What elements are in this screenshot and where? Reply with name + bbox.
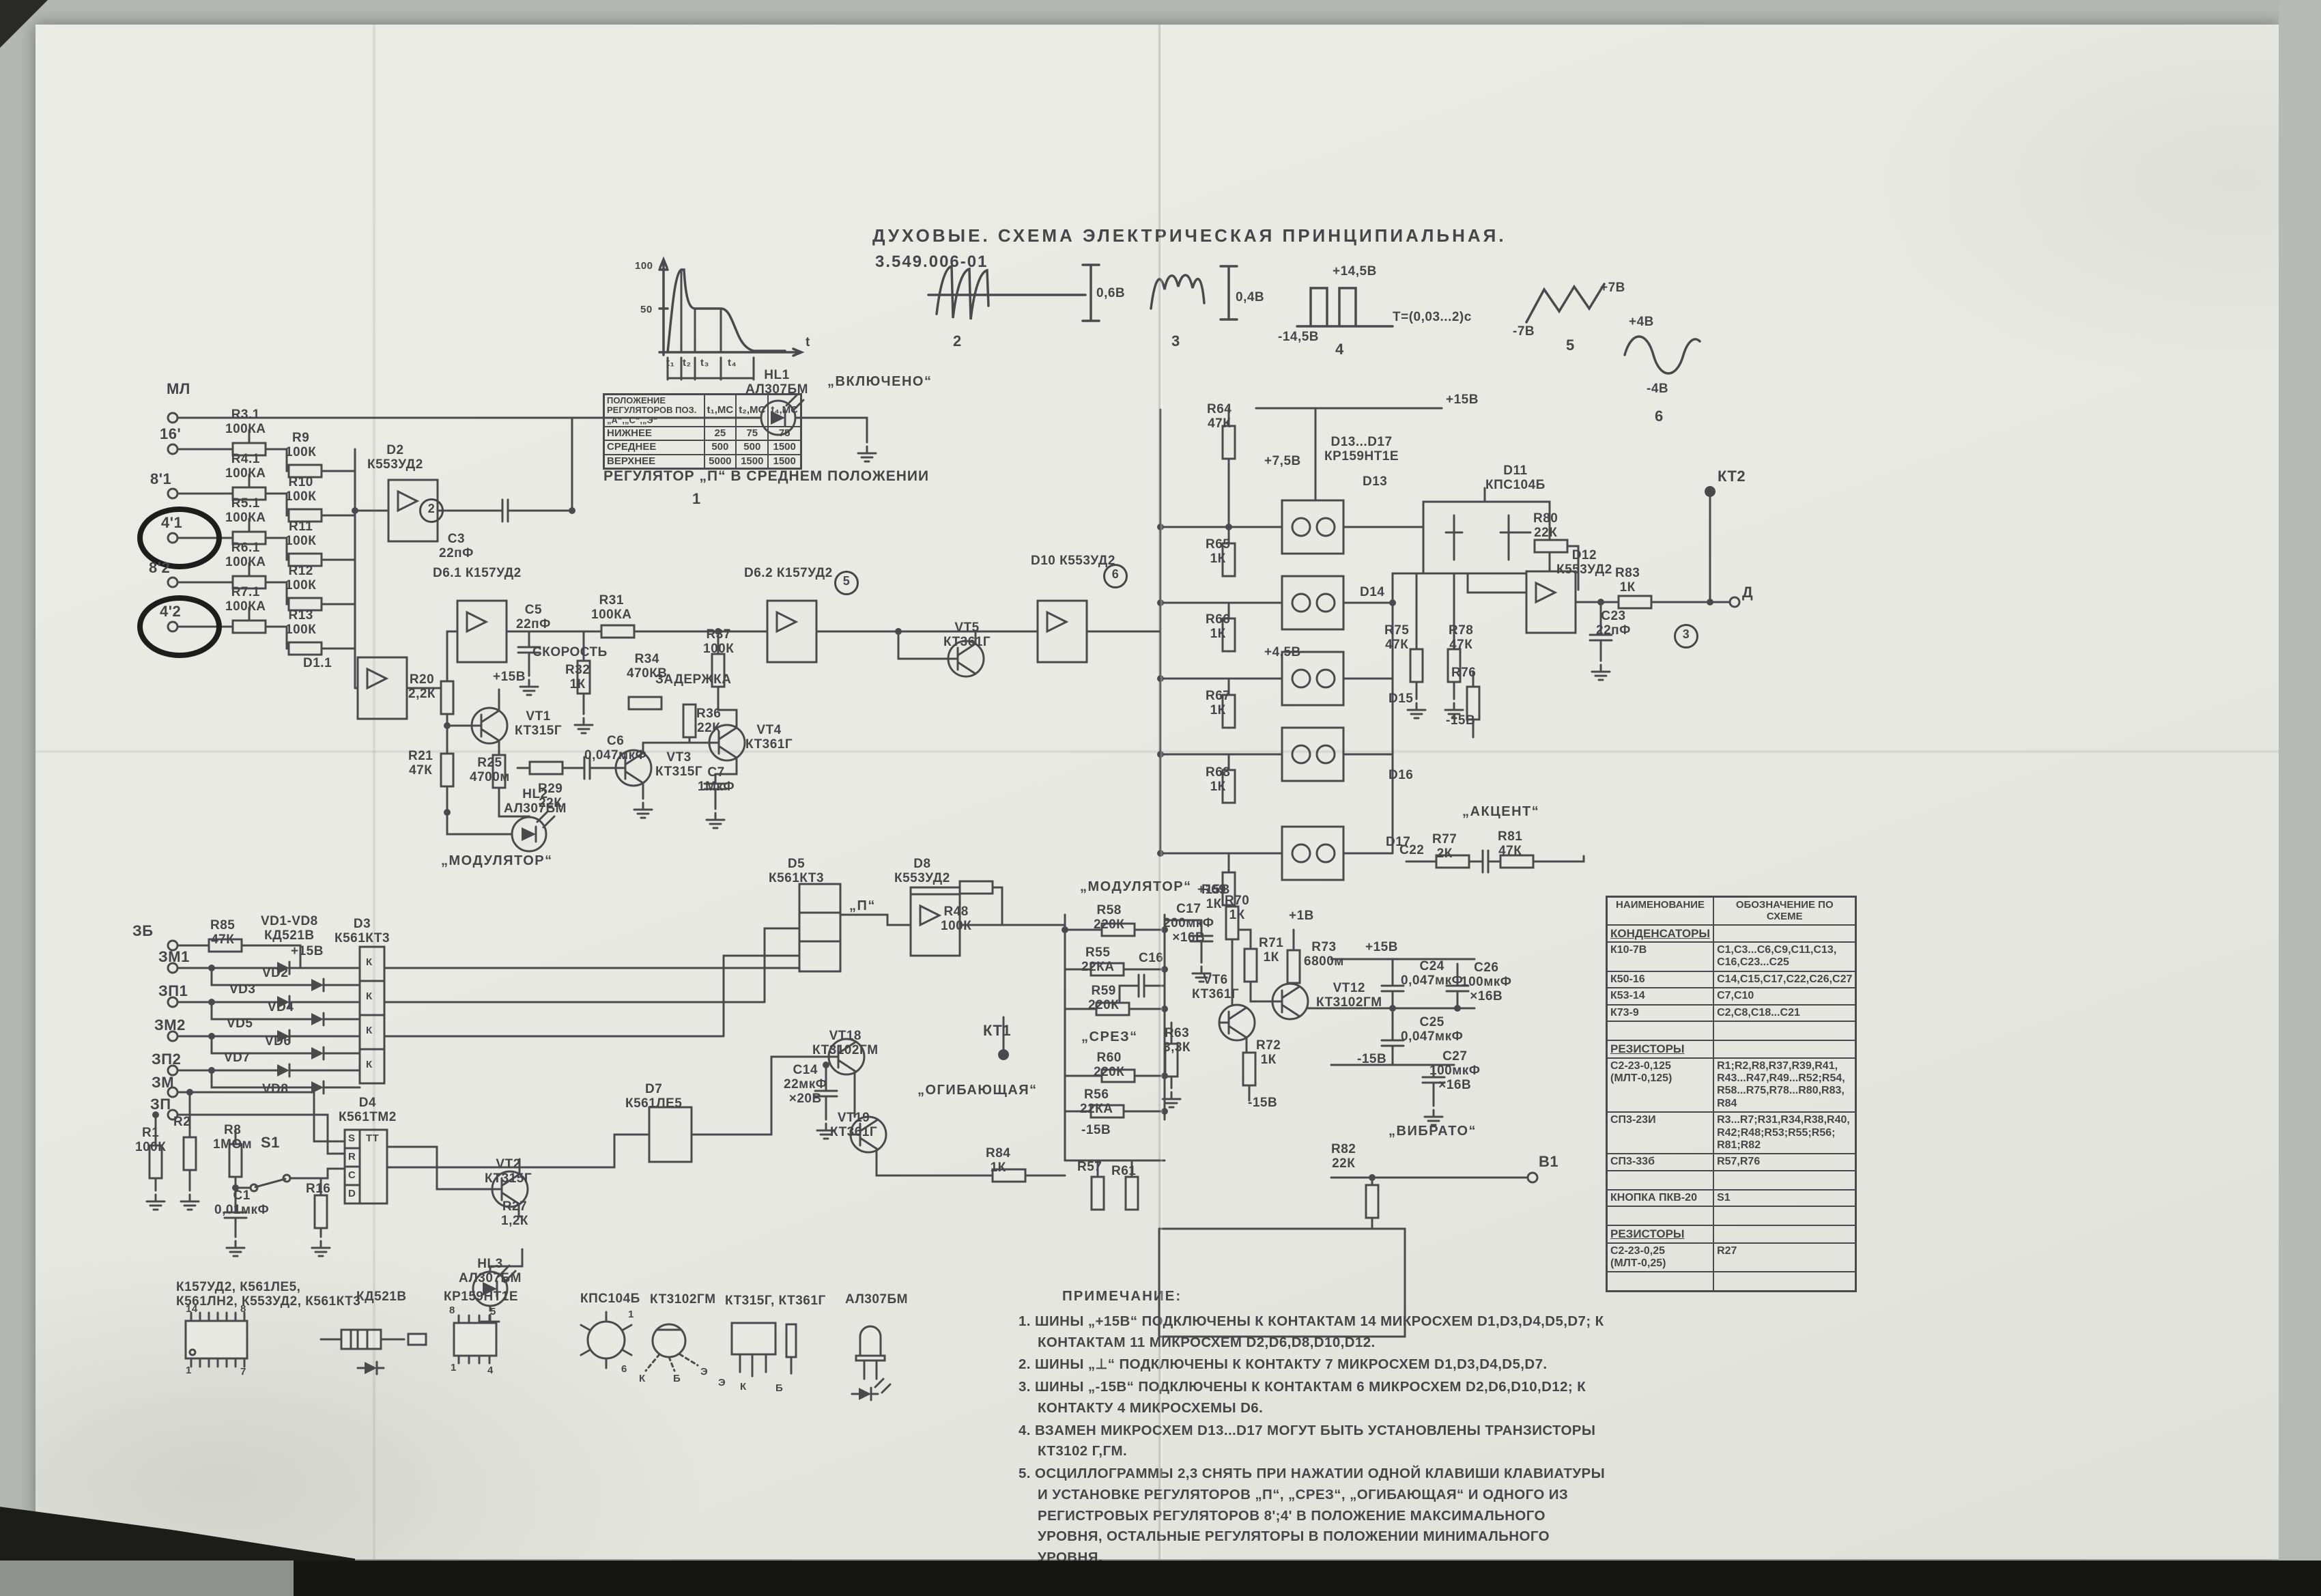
component-label: 3 <box>1674 624 1698 649</box>
regulator-table-row: НИЖНЕЕ257575 <box>604 427 801 441</box>
component-label: 4 <box>487 1365 494 1377</box>
component-label: R3.1 100КА <box>225 408 266 437</box>
component-label: R59 220К <box>1088 984 1119 1013</box>
component-label: „АКЦЕНТ“ <box>1462 804 1539 819</box>
component-label: R25 4700м <box>470 756 510 785</box>
component-label: -15В <box>1248 1096 1277 1111</box>
component-label: -15В <box>1357 1053 1386 1067</box>
component-label: R13 100К <box>285 609 316 638</box>
components-table-header-name: НАИМЕНОВАНИЕ <box>1607 897 1714 925</box>
regulator-table-row: СРЕДНЕЕ5005001500 <box>604 440 801 455</box>
component-label: C27 100мкФ ×16В <box>1429 1050 1480 1093</box>
component-label: R31 100КА <box>591 594 632 623</box>
components-table-row: РЕЗИСТОРЫ <box>1607 1040 1856 1058</box>
component-label: К <box>366 957 373 969</box>
component-label: -7В <box>1513 325 1535 339</box>
component-label: „ВИБРАТО“ <box>1389 1124 1477 1139</box>
component-label: D6.1 К157УД2 <box>433 567 522 581</box>
component-label: C1 0,01мкФ <box>214 1189 269 1218</box>
component-label: D1.1 <box>303 657 332 671</box>
component-label: -15В <box>1081 1124 1111 1138</box>
package-label: АЛ307БМ <box>845 1293 908 1307</box>
package-label: КПС104Б <box>580 1292 640 1307</box>
component-label: C6 0,047мкФ <box>584 735 646 763</box>
component-label: Э <box>718 1378 726 1389</box>
component-label: D8 К553УД2 <box>894 857 950 886</box>
component-label: R72 1К <box>1256 1039 1281 1068</box>
component-label: T=(0,03...2)с <box>1393 311 1472 325</box>
component-label: VD3 <box>229 983 255 997</box>
component-label: -14,5В <box>1278 330 1319 345</box>
component-label: 6 <box>1103 564 1128 588</box>
component-label: R6.1 100КА <box>225 541 266 570</box>
component-label: R77 2К <box>1432 833 1457 861</box>
component-label: D3 К561КТ3 <box>334 917 390 946</box>
component-label: VT2 КТ315Г <box>485 1158 532 1186</box>
component-label: C25 0,047мкФ <box>1401 1016 1463 1044</box>
component-label: D2 К553УД2 <box>367 444 423 472</box>
component-label: +15В <box>1365 941 1398 955</box>
component-label: C7 1МкФ <box>698 766 735 795</box>
component-label: КТ2 <box>1718 468 1746 485</box>
component-label: R48 100К <box>941 905 971 934</box>
scanner-bed-right <box>2279 0 2321 1596</box>
components-table-row: К73-9C2,C8,C18...C21 <box>1607 1005 1856 1021</box>
component-label: 0,4В <box>1236 291 1264 305</box>
component-label: D13...D17 КР159НТ1Е <box>1324 436 1399 464</box>
package-label: КТ315Г, КТ361Г <box>725 1294 826 1309</box>
package-label: К157УД2, К561ЛЕ5, К561ЛН2, К553УД2, К561… <box>176 1281 360 1309</box>
component-label: R27 1,2К <box>501 1200 528 1229</box>
component-label: R67 1К <box>1206 689 1230 718</box>
component-label: C26 100мкФ ×16В <box>1461 961 1511 1004</box>
component-label: Э <box>700 1367 708 1378</box>
component-label: 14 <box>186 1304 198 1315</box>
component-label: R65 1К <box>1206 538 1230 567</box>
component-label: VD8 <box>262 1083 288 1097</box>
component-label: В1 <box>1539 1154 1558 1170</box>
component-label: R58 220К <box>1094 904 1124 932</box>
package-label: КД521В <box>356 1290 407 1305</box>
component-label: VD5 <box>227 1017 253 1031</box>
component-label: ЗБ <box>132 923 154 939</box>
component-label: S1 <box>261 1135 280 1151</box>
component-label: К <box>740 1382 747 1393</box>
component-label: R7.1 100КА <box>225 586 266 614</box>
component-label: -4В <box>1647 382 1668 397</box>
scanner-bed-bottom <box>294 1561 2321 1596</box>
component-label: R71 1К <box>1259 937 1283 965</box>
component-label: Б <box>673 1373 681 1385</box>
component-label: +1В <box>1289 909 1314 924</box>
component-label: 16' <box>160 426 181 442</box>
components-table-row: К10-7ВC1,C3...C6,C9,C11,C13, C16,C23...C… <box>1607 942 1856 971</box>
component-label: ЗАДЕРЖКА <box>655 673 731 687</box>
note-item: 3. ШИНЫ „-15В“ ПОДКЛЮЧЕНЫ К КОНТАКТАМ 6 … <box>1019 1377 1612 1419</box>
component-label: VD4 <box>268 1001 294 1015</box>
component-label: 6 <box>621 1364 627 1376</box>
components-table-row <box>1607 1206 1856 1225</box>
component-label: 3 <box>1171 333 1180 350</box>
note-item: 2. ШИНЫ „⊥“ ПОДКЛЮЧЕНЫ К КОНТАКТУ 7 МИКР… <box>1019 1354 1612 1376</box>
component-label: 8 <box>240 1304 246 1315</box>
components-table-row: РЕЗИСТОРЫ <box>1607 1225 1856 1243</box>
regulator-table-col3: t₄,МС <box>768 395 801 427</box>
components-table-row <box>1607 1272 1856 1292</box>
component-label: R64 47К <box>1207 403 1231 431</box>
component-label: R10 100К <box>285 476 316 504</box>
component-label: 1 <box>451 1363 457 1374</box>
components-table-row: СП3-23ИR3...R7;R31,R34,R38,R40, R42;R48;… <box>1607 1112 1856 1154</box>
component-label: Б <box>775 1383 783 1395</box>
component-label: R5.1 100КА <box>225 497 266 526</box>
component-label: VT19 КТ361Г <box>830 1111 877 1140</box>
page-title: ДУХОВЫЕ. СХЕМА ЭЛЕКТРИЧЕСКАЯ ПРИНЦИПИАЛЬ… <box>872 225 1507 246</box>
component-label: ЗП <box>150 1096 171 1113</box>
components-table-row: С2-23-0,125 (МЛТ-0,125)R1;R2,R8,R37,R39,… <box>1607 1058 1856 1113</box>
component-label: R81 47К <box>1498 830 1522 859</box>
component-label: +4,5В <box>1264 646 1301 660</box>
component-label: 7 <box>240 1367 246 1378</box>
component-label: R32 1К <box>565 664 590 692</box>
component-label: R36 22К <box>696 707 721 736</box>
component-label: +14,5В <box>1333 265 1377 279</box>
component-label: 100 <box>635 261 653 272</box>
component-label: R16 <box>306 1182 330 1197</box>
component-label: VT3 КТ315Г <box>655 751 702 780</box>
component-label: C <box>348 1170 356 1182</box>
regulator-caption: РЕГУЛЯТОР „П“ В СРЕДНЕМ ПОЛОЖЕНИИ <box>603 468 929 485</box>
component-label: R75 47К <box>1384 624 1409 653</box>
component-label: R12 100К <box>285 565 316 593</box>
component-label: R37 100К <box>703 628 734 657</box>
components-table-row: С2-23-0,25 (МЛТ-0,25)R27 <box>1607 1243 1856 1272</box>
component-label: „МОДУЛЯТОР“ <box>1080 879 1192 894</box>
component-label: 8'2 <box>149 560 170 576</box>
component-label: R55 22КА <box>1081 946 1114 975</box>
component-label: R21 47К <box>408 750 433 778</box>
package-label: КТ3102ГМ <box>650 1293 716 1307</box>
component-label: D11 КПС104Б <box>1485 464 1546 493</box>
notes-heading: ПРИМЕЧАНИЕ: <box>1062 1286 1612 1307</box>
component-label: D7 К561ЛЕ5 <box>625 1083 682 1111</box>
component-label: „СРЕЗ“ <box>1081 1029 1138 1044</box>
component-label: СКОРОСТЬ <box>532 646 608 660</box>
component-label: R9 100К <box>285 431 316 460</box>
component-label: C23 22пФ <box>1596 610 1631 638</box>
note-item: 1. ШИНЫ „+15В“ ПОДКЛЮЧЕНЫ К КОНТАКТАМ 14… <box>1019 1311 1612 1354</box>
figure-number: 1 <box>692 490 700 508</box>
component-label: D10 К553УД2 <box>1031 554 1115 569</box>
component-label: ЗМ <box>152 1074 174 1091</box>
component-label: 8'1 <box>150 471 171 487</box>
component-label: „П“ <box>849 898 876 913</box>
component-label: VT6 КТ361Г <box>1192 973 1239 1002</box>
component-label: +15В <box>291 945 324 959</box>
note-item: 5. ОСЦИЛЛОГРАММЫ 2,3 СНЯТЬ ПРИ НАЖАТИИ О… <box>1019 1464 1612 1569</box>
component-label: D12 К553УД2 <box>1556 549 1612 578</box>
component-label: 1 <box>186 1365 192 1377</box>
package-label: КР159НТ1Е <box>444 1290 518 1305</box>
document-number: 3.549.006-01 <box>875 253 988 272</box>
component-label: 8 <box>449 1305 455 1317</box>
component-label: 2 <box>419 498 444 523</box>
component-label: D5 К561КТ3 <box>769 857 824 886</box>
component-label: t₂ <box>683 358 692 369</box>
component-label: 4 <box>1335 341 1344 358</box>
component-label: D16 <box>1389 769 1413 783</box>
component-label: R73 6800м <box>1304 941 1344 969</box>
component-label: D <box>348 1188 356 1200</box>
component-label: VD1-VD8 КД521В <box>261 915 318 943</box>
component-label: C24 0,047мкФ <box>1401 960 1463 988</box>
component-label: ТТ <box>366 1133 379 1145</box>
component-label: VT1 КТ315Г <box>515 710 562 739</box>
component-label: VD2 <box>262 967 288 981</box>
component-label: R20 2,2К <box>408 673 436 702</box>
component-label: HL1 АЛ307БМ <box>745 369 808 397</box>
component-label: S <box>348 1133 356 1145</box>
component-label: 4'2 <box>160 603 181 620</box>
component-label: 5 <box>1566 337 1575 354</box>
component-label: R83 1К <box>1615 567 1640 595</box>
components-table-row: КНОПКА ПКВ-20S1 <box>1607 1190 1856 1206</box>
component-label: К <box>366 1025 373 1037</box>
component-label: D15 <box>1389 692 1413 707</box>
component-label: R60 220К <box>1094 1051 1124 1080</box>
component-label: +15В <box>493 670 526 685</box>
component-label: R2 <box>173 1115 190 1130</box>
component-label: VT12 КТ3102ГМ <box>1316 982 1382 1010</box>
component-label: -15В <box>1446 714 1475 728</box>
regulator-table-col1: t₁,МС <box>704 395 737 427</box>
component-label: +7,5В <box>1264 455 1301 469</box>
component-label: C14 22мкФ ×20В <box>784 1064 827 1107</box>
component-label: VT5 КТ361Г <box>943 621 991 650</box>
component-label: К <box>639 1373 646 1385</box>
regulator-table-row: ВЕРХНЕЕ500015001500 <box>604 455 801 469</box>
scanner-bed-bottom-left <box>0 1561 294 1596</box>
component-label: R1 100К <box>135 1126 166 1155</box>
components-table-row: К53-14C7,C10 <box>1607 988 1856 1004</box>
component-label: R8 1МОм <box>213 1124 252 1152</box>
component-label: HL2 АЛ307БМ <box>504 788 567 816</box>
regulator-table-col2: t₂,МС <box>736 395 768 427</box>
components-table-row <box>1607 1021 1856 1040</box>
component-label: D13 <box>1363 475 1387 489</box>
component-label: C22 <box>1399 844 1424 858</box>
component-label: VD6 <box>265 1035 291 1049</box>
component-label: R57 <box>1077 1160 1102 1175</box>
note-item: 4. ВЗАМЕН МИКРОСХЕМ D13...D17 МОГУТ БЫТЬ… <box>1019 1421 1612 1463</box>
component-label: R4.1 100КА <box>225 453 266 481</box>
component-label: R85 47К <box>210 919 235 947</box>
regulator-positions-table: ПОЛОЖЕНИЕ РЕГУЛЯТОРОВ ПОЗ. „А“,„С“,„Э“ t… <box>603 393 802 470</box>
component-label: ЗМ2 <box>154 1017 186 1034</box>
component-label: R56 22КА <box>1080 1088 1113 1117</box>
component-label: VT18 КТ3102ГМ <box>812 1029 879 1058</box>
component-label: 5 <box>490 1307 496 1318</box>
component-label: R63 3,3К <box>1163 1027 1191 1055</box>
component-label: +4В <box>1629 315 1654 330</box>
components-table-row: СП3-33бR57,R76 <box>1607 1154 1856 1170</box>
component-label: t₃ <box>700 358 709 369</box>
notes-block: ПРИМЕЧАНИЕ: 1. ШИНЫ „+15В“ ПОДКЛЮЧЕНЫ К … <box>1019 1286 1612 1570</box>
component-label: R82 22К <box>1331 1143 1356 1171</box>
components-table-row: К50-16C14,C15,C17,C22,C26,C27 <box>1607 971 1856 988</box>
component-label: +7В <box>1600 281 1625 296</box>
components-table-row: КОНДЕНСАТОРЫ <box>1607 925 1856 943</box>
component-label: D6.2 К157УД2 <box>744 567 833 581</box>
component-label: +15В <box>1446 393 1479 408</box>
component-label: R66 1К <box>1206 613 1230 642</box>
component-label: R80 22К <box>1533 512 1558 541</box>
component-label: 50 <box>640 304 653 316</box>
component-label: C16 <box>1139 952 1163 966</box>
component-label: ЗП1 <box>158 983 188 999</box>
component-label: t <box>806 336 810 350</box>
component-label: R78 47К <box>1449 624 1473 653</box>
component-label: 0,6В <box>1096 287 1125 301</box>
component-label: ЗМ1 <box>158 949 190 965</box>
component-label: R70 1К <box>1225 894 1249 923</box>
component-label: +15В <box>1197 883 1230 898</box>
scanned-schematic-page: ДУХОВЫЕ. СХЕМА ЭЛЕКТРИЧЕСКАЯ ПРИНЦИПИАЛЬ… <box>0 0 2321 1596</box>
components-table-row <box>1607 1171 1856 1190</box>
component-label: 5 <box>834 571 859 595</box>
component-label: R68 1К <box>1206 766 1230 795</box>
regulator-table-corner: ПОЛОЖЕНИЕ РЕГУЛЯТОРОВ ПОЗ. „А“,„С“,„Э“ <box>604 395 704 427</box>
component-label: МЛ <box>167 381 190 397</box>
component-label: 2 <box>953 333 962 350</box>
component-label: Д <box>1742 584 1753 601</box>
component-label: R76 <box>1451 666 1476 681</box>
component-label: VT4 КТ361Г <box>745 724 793 752</box>
component-label: 4'1 <box>161 515 182 531</box>
component-label: К <box>366 1059 373 1071</box>
component-label: ЗП2 <box>152 1051 181 1068</box>
components-table: НАИМЕНОВАНИЕ ОБОЗНАЧЕНИЕ ПО СХЕМЕ КОНДЕН… <box>1606 896 1857 1292</box>
component-label: R84 1К <box>986 1147 1010 1175</box>
component-label: R <box>348 1152 356 1163</box>
component-label: C5 22пФ <box>516 603 551 632</box>
component-label: „МОДУЛЯТОР“ <box>441 853 553 868</box>
component-label: „ВКЛЮЧЕНО“ <box>827 374 932 389</box>
component-label: C3 22пФ <box>439 532 474 561</box>
component-label: D14 <box>1360 586 1384 600</box>
component-label: R61 <box>1111 1165 1136 1179</box>
component-label: D4 К561ТМ2 <box>339 1096 397 1125</box>
component-label: 6 <box>1655 408 1664 425</box>
component-label: t₁ <box>666 358 674 369</box>
component-label: C17 200мкФ ×16В <box>1163 902 1214 945</box>
component-label: КТ1 <box>983 1023 1011 1039</box>
components-table-header-ref: ОБОЗНАЧЕНИЕ ПО СХЕМЕ <box>1713 897 1856 925</box>
component-label: 1 <box>628 1309 634 1321</box>
component-label: t₄ <box>728 358 737 369</box>
component-label: К <box>366 991 373 1003</box>
component-label: VD7 <box>224 1051 250 1066</box>
component-label: „ОГИБАЮЩАЯ“ <box>917 1083 1038 1098</box>
component-label: HL3 АЛ307БМ <box>459 1257 522 1286</box>
component-label: R11 100К <box>285 520 316 549</box>
